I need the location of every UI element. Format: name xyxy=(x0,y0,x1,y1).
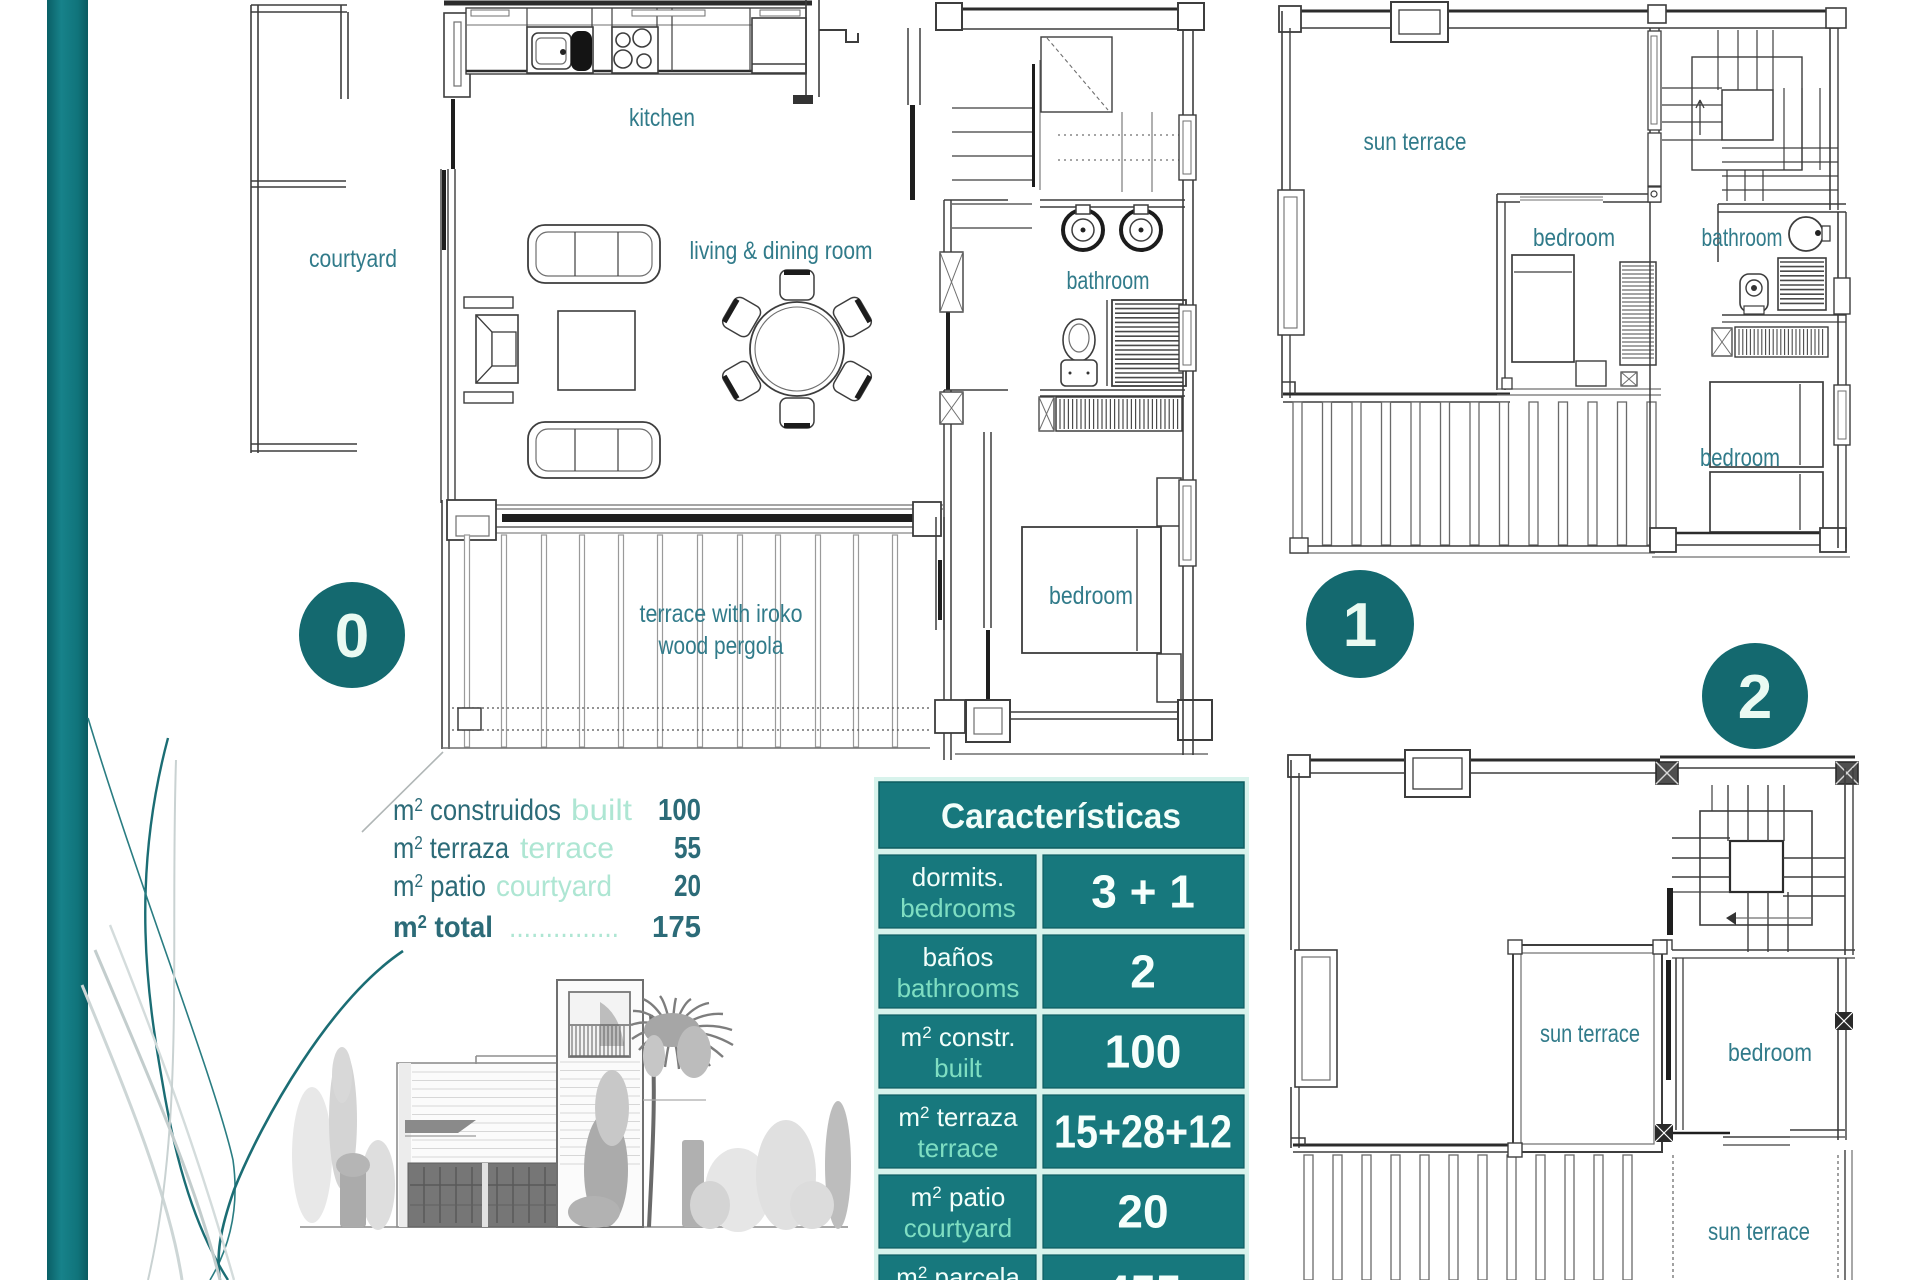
svg-text:bedroom: bedroom xyxy=(1049,582,1133,610)
svg-text:3 + 1: 3 + 1 xyxy=(1091,866,1195,918)
svg-text:2: 2 xyxy=(1738,663,1772,732)
svg-text:courtyard: courtyard xyxy=(496,870,612,903)
svg-text:bathroom: bathroom xyxy=(1702,224,1783,252)
svg-text:bedroom: bedroom xyxy=(1728,1039,1812,1067)
svg-text:wood pergola: wood pergola xyxy=(658,632,784,660)
svg-text:100: 100 xyxy=(1105,1026,1182,1078)
svg-text:terrace: terrace xyxy=(520,832,614,865)
svg-text:sun terrace: sun terrace xyxy=(1364,128,1467,156)
svg-text:m2 parcela: m2 parcela xyxy=(896,1262,1020,1280)
svg-text:sun terrace: sun terrace xyxy=(1540,1020,1640,1048)
svg-text:m2 terraza: m2 terraza xyxy=(898,1102,1018,1132)
svg-text:m2 terraza: m2 terraza xyxy=(393,832,509,865)
svg-text:15+28+12: 15+28+12 xyxy=(1054,1106,1232,1158)
svg-text:m2 total: m2 total xyxy=(393,911,493,944)
svg-text:m2 patio: m2 patio xyxy=(393,870,486,903)
svg-text:built: built xyxy=(934,1053,982,1083)
svg-text:20: 20 xyxy=(1117,1186,1168,1238)
svg-text:bedroom: bedroom xyxy=(1533,224,1615,252)
svg-text:175: 175 xyxy=(652,909,701,944)
svg-text:courtyard: courtyard xyxy=(309,245,397,273)
svg-text:100: 100 xyxy=(658,792,701,827)
svg-text:terrace with iroko: terrace with iroko xyxy=(640,600,803,628)
svg-text:455: 455 xyxy=(1105,1266,1182,1280)
svg-text:built: built xyxy=(571,794,633,827)
svg-text:bathrooms: bathrooms xyxy=(897,973,1020,1003)
svg-text:2: 2 xyxy=(1130,946,1156,998)
svg-text:living & dining room: living & dining room xyxy=(690,237,873,265)
svg-text:bedroom: bedroom xyxy=(1700,444,1780,472)
svg-text:20: 20 xyxy=(674,868,701,903)
svg-text:1: 1 xyxy=(1343,591,1377,660)
svg-text:55: 55 xyxy=(674,830,701,865)
svg-text:m2 patio: m2 patio xyxy=(911,1182,1006,1212)
svg-text:m2 constr.: m2 constr. xyxy=(901,1022,1016,1052)
svg-text:bathroom: bathroom xyxy=(1067,267,1150,295)
svg-text:...............: ............... xyxy=(509,911,619,944)
svg-text:kitchen: kitchen xyxy=(629,104,695,132)
svg-text:dormits.: dormits. xyxy=(912,862,1004,892)
svg-text:0: 0 xyxy=(335,602,369,671)
svg-text:courtyard: courtyard xyxy=(904,1213,1012,1243)
svg-text:baños: baños xyxy=(923,942,994,972)
svg-text:Características: Características xyxy=(941,797,1181,836)
svg-text:bedrooms: bedrooms xyxy=(900,893,1016,923)
svg-text:sun terrace: sun terrace xyxy=(1708,1218,1810,1246)
svg-text:terrace: terrace xyxy=(918,1133,999,1163)
